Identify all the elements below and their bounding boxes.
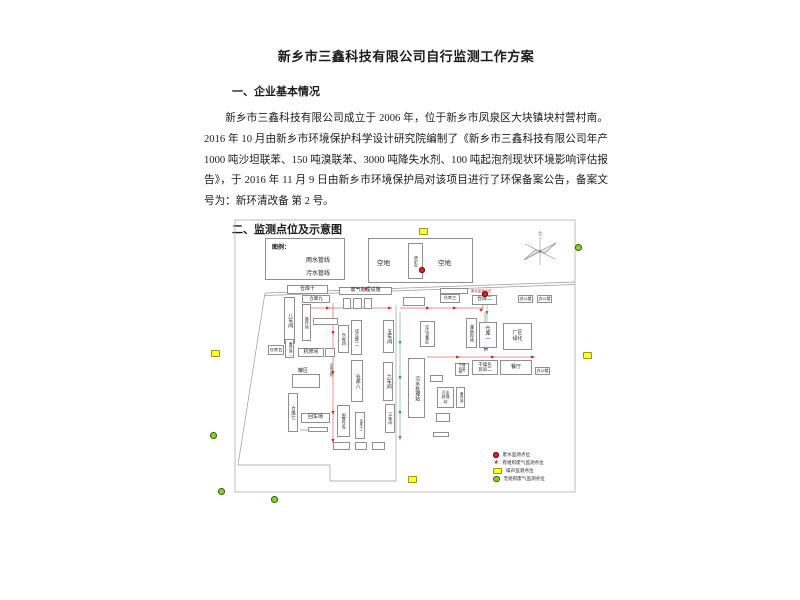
building-workshop-8: 八车间 (284, 297, 295, 344)
building-warehouse-2: 仓库二 (472, 295, 497, 305)
stack-gas-point-label: 有组织废气监测点位 (502, 460, 543, 466)
open-area-left-label: 空地 (377, 257, 390, 267)
noise-point-east (583, 352, 592, 359)
small-building (403, 297, 425, 306)
building-spareparts-2: 备件库二 (285, 339, 294, 358)
building-workshop-3: 三车间 (385, 404, 395, 433)
building-workshop-6: 六车间 (383, 362, 393, 401)
point-legend-row: 噪声监测点位 (493, 467, 545, 475)
building-drying-packing-2: 干燥包装间二 (472, 360, 498, 375)
building-canteen: 餐厅 (500, 360, 532, 375)
fugitive-gas-point-sw (218, 488, 225, 495)
building-air-compressor: 空压设备区 (420, 321, 435, 347)
point-legend-row: ★ 有组织废气监测点位 (493, 459, 545, 467)
body-paragraph: 新乡市三鑫科技有限公司成立于 2006 年，位于新乡市凤泉区大块镇块村营村南。2… (204, 109, 608, 213)
pipe-legend: 图例： 雨水管线 污水管线 (265, 238, 345, 280)
noise-point-icon (493, 468, 502, 475)
building-warehouse-4: 仓库四 (338, 325, 349, 353)
building-repair-shop: 机修间 (298, 348, 324, 357)
fugitive-gas-point-icon (493, 476, 500, 483)
building-warehouse-10: 仓库十 (287, 285, 328, 294)
wastewater-point-outfall (482, 291, 488, 297)
building-warehouse-8: 仓库八 (351, 360, 363, 402)
north-label: 北 (538, 231, 543, 237)
wastewater-point-label: 废水监测点位 (503, 452, 531, 458)
tank-area (292, 374, 320, 388)
fugitive-gas-point-w (210, 432, 217, 439)
building-filling-site: 灌装现场 (466, 318, 477, 348)
small-building (355, 442, 367, 450)
factory-greening: 厂区绿化 (503, 323, 532, 350)
point-legend-row: 废水监测点位 (493, 451, 545, 459)
small-building (343, 298, 351, 309)
building-finished-goods-2: 成品库二 (351, 320, 362, 355)
section-heading-1: 一、企业基本情况 (232, 83, 608, 99)
building-office-1: 办公楼 (518, 295, 533, 303)
building-spareparts: 备件库 (456, 387, 465, 408)
sewage-line-label: 污水管线 (306, 268, 330, 277)
small-building (333, 442, 350, 450)
noise-point-west (211, 350, 220, 357)
small-building (433, 432, 449, 437)
small-building (430, 375, 443, 382)
noise-point-south (408, 476, 417, 483)
point-legend: 废水监测点位 ★ 有组织废气监测点位 噪声监测点位 无组织废气监测点位 (493, 451, 545, 483)
building-warehouse-5: 仓库五 (268, 345, 284, 355)
small-building (313, 318, 338, 325)
compass-icon (524, 237, 556, 265)
page: 新乡市三鑫科技有限公司自行监测工作方案 一、企业基本情况 新乡市三鑫科技有限公司… (0, 0, 800, 600)
outfall-note-box (440, 288, 468, 294)
building-workshop-5: 五车间 (383, 320, 394, 353)
small-building (364, 298, 372, 309)
fugitive-gas-point-ne (575, 244, 582, 251)
small-building (325, 348, 335, 357)
stack-gas-point-icon: ★ (493, 461, 498, 465)
fugitive-gas-point-label: 无组织废气监测点位 (504, 476, 545, 482)
building-warehouse-1: 仓库一 (479, 322, 497, 348)
small-building (372, 442, 385, 450)
road-label: 运输道路 (329, 363, 334, 377)
building-sewage-plant: 污水处理站 (408, 358, 425, 418)
building-drying-packing-1: 干燥包装间一 (455, 363, 469, 376)
small-building (308, 427, 328, 432)
open-area-right-label: 空地 (438, 257, 451, 267)
building-turnaround-yard: 回车场 (301, 413, 330, 423)
fugitive-gas-point-s (271, 496, 278, 503)
stack-gas-point-treatment: ★ (363, 288, 368, 292)
building-office-2: 办公楼 (537, 295, 552, 303)
small-building (353, 298, 362, 309)
tank-area-label: 罐区 (298, 367, 308, 374)
rain-line-label: 雨水管线 (306, 255, 330, 264)
point-legend-row: 无组织废气监测点位 (493, 475, 545, 483)
building-warehouse-3: 仓库三 (440, 294, 460, 303)
building-operation-room: 操作间 (302, 304, 311, 341)
building-boiler-room: 锅炉房 (408, 243, 423, 279)
building-office-3: 办公楼 (535, 367, 550, 375)
pipe-legend-title: 图例： (272, 242, 344, 251)
wastewater-point-icon (493, 452, 499, 458)
document-title: 新乡市三鑫科技有限公司自行监测工作方案 (204, 46, 608, 65)
wastewater-point-boiler (419, 267, 425, 273)
building-warehouse-11: 仓库十一 (355, 412, 365, 439)
site-diagram: 图例： 雨水管线 污水管线 空地 空地 锅炉房 北 仓库十 仓库九 八车间 操作… (195, 215, 615, 505)
noise-point-label: 噪声监测点位 (506, 468, 534, 474)
building-warehouse-7: 仓库七 (288, 393, 298, 432)
building-idle-warehouse: 闲置仓库 (337, 405, 350, 437)
building-sewage-plant-2: 污水处理站 (437, 387, 454, 408)
building-warehouse-9: 仓库九 (302, 295, 330, 303)
small-building (436, 413, 450, 422)
noise-point-north (419, 228, 428, 235)
